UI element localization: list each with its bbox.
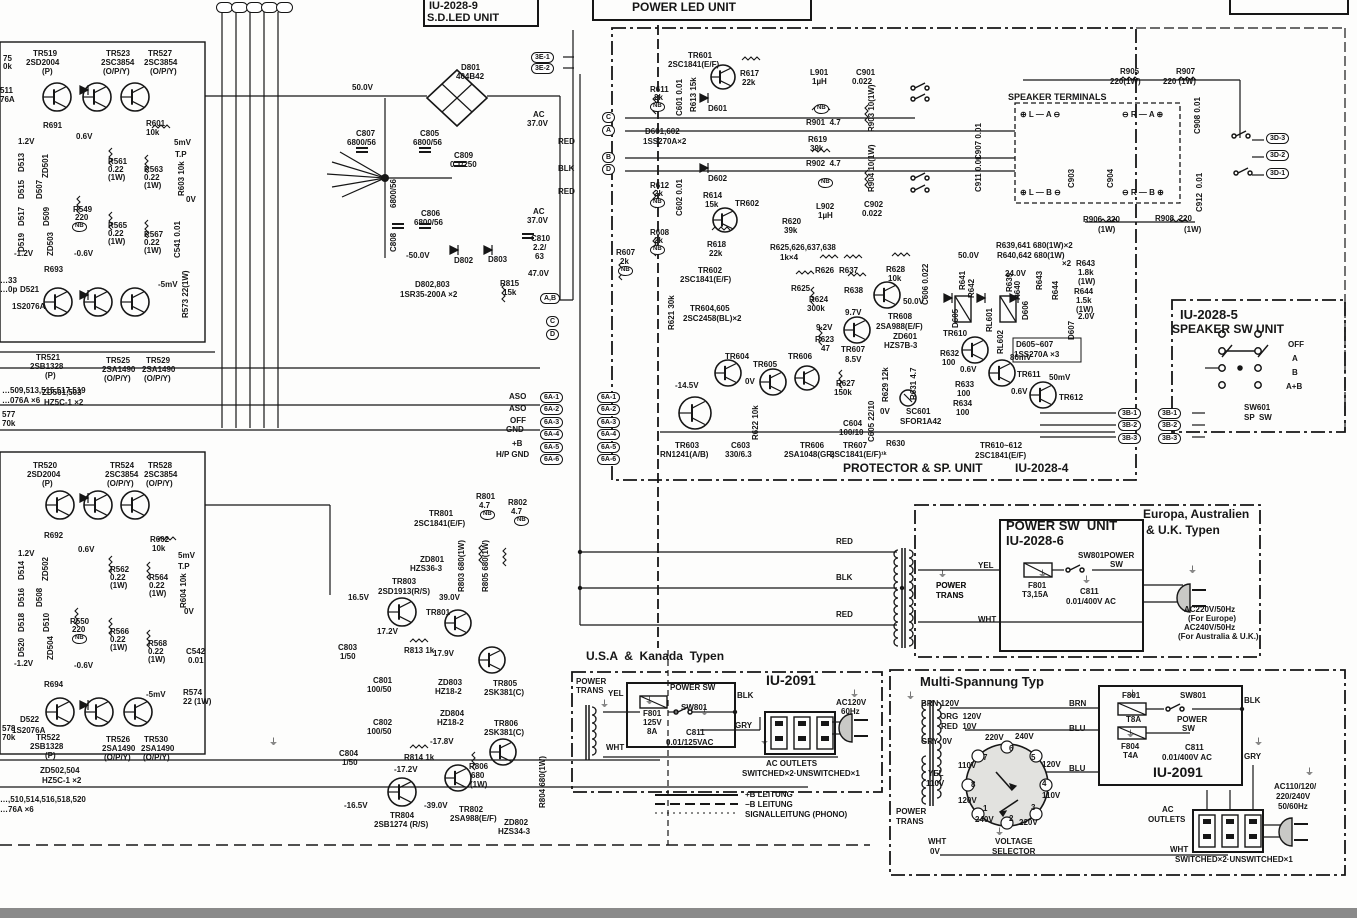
legend-label: −B LEITUNG	[745, 801, 793, 809]
power_supply-label: 0.1/250	[450, 161, 477, 169]
protector_unit-label: 100	[957, 390, 970, 398]
multi_voltage-label: WHT	[928, 838, 946, 846]
power_supply-label: 6800/56	[413, 139, 442, 147]
power_amp_left-label: (O/P/Y)	[104, 375, 131, 383]
nb-mark: NB	[814, 104, 829, 114]
connector-tag: 3D-3	[1266, 133, 1289, 144]
power_amp_left-label: 1.2V	[18, 138, 34, 146]
power_amp_left-label: (P)	[42, 480, 53, 488]
power_supply-label: RED	[836, 538, 853, 546]
usa_canada-label: YEL	[608, 690, 624, 698]
aux_amp-label: 1/50	[342, 759, 358, 767]
io_labels-label: H/P GND	[496, 451, 529, 459]
power_amp_left-label: D508	[36, 588, 44, 607]
multi_voltage-label: 7	[983, 754, 987, 762]
power_supply-label: D803	[488, 256, 507, 264]
multi_voltage-label: SW801	[1180, 692, 1206, 700]
power_amp_left-label: 5mV	[178, 552, 195, 560]
speaker_section-label: 220(1W)	[1110, 78, 1141, 86]
schematic-page: IU-2028-9S.D.LED UNITPOWER LED UNITPROTE…	[0, 0, 1357, 918]
connector-tag: 3D-2	[1266, 150, 1289, 161]
multi_voltage-label: 110V	[1042, 792, 1060, 800]
protector_unit-label: R631 4.7	[910, 368, 918, 400]
protector_unit-label: (1W)	[1078, 278, 1095, 286]
protector_unit-label: TR612	[1059, 394, 1083, 402]
power_sw_europa-label: WHT	[978, 616, 996, 624]
multi_voltage-label: 4	[1042, 780, 1046, 788]
power_sw_europa-label: YEL	[978, 562, 994, 570]
power_amp_left-label: ZD501	[42, 154, 50, 178]
connector-tag: 6A-5	[597, 442, 620, 453]
connector-tag: 6A-2	[540, 404, 563, 415]
protector_unit-label: 50mV	[1049, 374, 1070, 382]
power_sw_europa-label: T3,15A	[1022, 591, 1048, 599]
protector_unit-label: R638	[844, 287, 863, 295]
protector_unit-label: R625,626,637,638	[770, 244, 836, 252]
protector_unit-label: SFOR1A42	[900, 418, 941, 426]
power_amp_left-label: D519	[18, 233, 26, 252]
protector_unit-label: 0.6V	[1011, 388, 1027, 396]
power_amp_left-label: T.P	[178, 563, 190, 571]
protector_unit-label: 10k	[888, 275, 901, 283]
unit_titles-label: S.D.LED UNIT	[427, 13, 499, 25]
power_supply-label: 15k	[503, 289, 516, 297]
connector-tag: 3E-2	[531, 63, 554, 74]
speaker_section-label: B	[1292, 369, 1298, 377]
unit_titles-label: & U.K. Typen	[1146, 524, 1220, 537]
usa_canada-label: C811	[686, 729, 705, 737]
power_supply-label: RED	[558, 138, 575, 146]
connector-tag: 6A-4	[597, 429, 620, 440]
multi_voltage-label: BLU	[1069, 725, 1085, 733]
power_amp_left-label: D510	[43, 613, 51, 632]
aux_amp-label: -39.0V	[424, 802, 448, 810]
protector_unit-label: D605	[952, 309, 960, 328]
power_amp_left-label: (1W)	[144, 182, 161, 190]
power_amp_left-label: 10k	[146, 129, 159, 137]
legend-label: +B LEITUNG	[745, 791, 793, 799]
unit_titles-label: Europa, Australien	[1143, 508, 1249, 521]
protector_unit-label: R622 10k	[752, 405, 760, 440]
connector-tag: 6A-1	[540, 392, 563, 403]
power_amp_left-label: 0.6V	[78, 546, 94, 554]
connector-tag: 3E-1	[531, 52, 554, 63]
ground-icon: ⏚	[938, 570, 947, 579]
multi_voltage-label: GRY	[1244, 753, 1261, 761]
power_amp_left-label: D513	[18, 153, 26, 172]
protector_unit-label: 2SC1841(E/F)	[668, 61, 719, 69]
protector_unit-label: TR606	[788, 353, 812, 361]
unit_titles-label: U.S.A & Kanada Typen	[586, 650, 724, 663]
multi_voltage-label: C811	[1185, 744, 1204, 752]
multi_voltage-label: 110V	[958, 762, 976, 770]
speaker_section-label: R907	[1176, 68, 1195, 76]
protector_unit-label: TR610	[943, 330, 967, 338]
speaker_section-label: C908 0.01	[1194, 97, 1202, 134]
protector_unit-label: 1SS270A×2	[643, 138, 686, 146]
power_supply-label: 1SR35-200A ×2	[400, 291, 457, 299]
power_amp_left-label: (O/P/Y)	[144, 375, 171, 383]
connector-tag: 6A-1	[597, 392, 620, 403]
usa_canada-label: WHT	[606, 744, 624, 752]
power_supply-label: -50.0V	[406, 252, 430, 260]
protector_unit-label: RN1241(A/B)	[660, 451, 708, 459]
speaker_section-label: ⊖ R — B ⊕	[1122, 189, 1164, 197]
power_supply-label: BLK	[558, 165, 574, 173]
unit_titles-label: IU-2028-6	[1006, 534, 1064, 548]
speaker_section-label: C912 0.01	[1196, 173, 1204, 212]
ground-icon: ⏚	[760, 737, 769, 746]
protector_unit-label: TR608	[888, 313, 912, 321]
protector_unit-label: HZS7B-3	[884, 342, 917, 350]
protector_unit-label: 2.0V	[1078, 313, 1094, 321]
power_amp_left-label: D514	[18, 561, 26, 580]
power_amp_left-label: 22 (1W)	[183, 698, 211, 706]
nb-mark: NB	[650, 198, 665, 208]
protector_unit-label: R901 4.7	[806, 119, 841, 127]
connector-tag: 6A-5	[540, 442, 563, 453]
multi_voltage-label: 0.01/400V AC	[1162, 754, 1212, 762]
multi_voltage-label: BLU	[1069, 765, 1085, 773]
unit_titles-label: IU-2091	[1153, 765, 1203, 780]
protector_unit-label: 2SC1841(E/F)	[680, 276, 731, 284]
power_amp_left-label: ZD502,504	[40, 767, 80, 775]
power_sw_europa-label: SW801	[1078, 552, 1104, 560]
protector_unit-label: 1µH	[812, 78, 827, 86]
power_amp_left-label: D520	[18, 638, 26, 657]
usa_canada-label: 8A	[647, 728, 657, 736]
usa_canada-label: SWITCHED×2·UNSWITCHED×1	[742, 770, 860, 778]
nb-mark: NB	[650, 245, 665, 255]
protector_unit-label: RL602	[997, 330, 1005, 354]
power_supply-label: 6800/56	[390, 179, 398, 208]
multi_voltage-label: 220V	[1019, 819, 1038, 827]
speaker_section-label: ⊕ L — A ⊖	[1020, 111, 1060, 119]
protector_unit-label: R621 30k	[668, 295, 676, 330]
ground-icon: ⏚	[1082, 576, 1091, 585]
usa_canada-label: BLK	[737, 692, 753, 700]
protector_unit-label: TR604,605	[690, 305, 730, 313]
protector_unit-label: 0.022	[862, 210, 882, 218]
power_amp_left-label: (P)	[42, 68, 53, 76]
speaker_section-label: (1W)	[1098, 226, 1115, 234]
connector-tag: 6A-3	[597, 417, 620, 428]
power_amp_left-label: R691	[43, 122, 62, 130]
connector-tag: 3B-1	[1118, 408, 1141, 419]
aux_amp-label: 2SK381(C)	[484, 689, 524, 697]
multi_voltage-label: WHT	[1170, 846, 1188, 854]
power_amp_left-label: ZD502	[42, 557, 50, 581]
protector_unit-label: C605 22/10	[868, 401, 876, 442]
protector_unit-label: R642	[968, 279, 976, 298]
protector_unit-label: TR604	[725, 353, 749, 361]
protector_unit-label: R640,642 680(1W)	[997, 252, 1065, 260]
protector_unit-label: 0V	[745, 378, 755, 386]
connector-tag: 6A-4	[540, 429, 563, 440]
nb-mark: NB	[818, 178, 833, 188]
aux_amp-label: HZS34-3	[498, 828, 530, 836]
multi_voltage-label: AC110/120/	[1274, 783, 1316, 791]
ground-icon: ⏚	[906, 692, 915, 701]
multi_voltage-label: OUTLETS	[1148, 816, 1185, 824]
unit_titles-label: Multi-Spannung Typ	[920, 675, 1044, 689]
power_amp_left-label: -0.6V	[74, 662, 93, 670]
ground-icon: ⏚	[1126, 730, 1135, 739]
connector-tag: A,B	[540, 293, 560, 304]
power_amp_left-label: 5mV	[174, 139, 191, 147]
protector_unit-label: 50.0V	[958, 252, 979, 260]
power_sw_europa-label: (For Australia & U.K.)	[1178, 633, 1259, 641]
power_amp_left-label: (P)	[45, 372, 56, 380]
power_supply-label: BLK	[836, 574, 852, 582]
power_supply-label: RED	[558, 188, 575, 196]
speaker_section-label: (1W)	[1184, 226, 1201, 234]
unit_titles-label: IU-2028-4	[1015, 462, 1068, 475]
protector_unit-label: 2SC2458(BL)×2	[683, 315, 741, 323]
multi_voltage-label: BLK	[1244, 697, 1260, 705]
aux_amp-label: 2SD1913(R/S)	[378, 588, 430, 596]
speaker_section-label: C911 0.01	[975, 156, 983, 192]
protector_unit-label: RL601	[986, 308, 994, 332]
aux_amp-label: R803 680(1W)	[458, 540, 466, 592]
connector-tag: 3B-3	[1158, 433, 1181, 444]
connector-tag: 6A-6	[597, 454, 620, 465]
power_amp_left-label: R604 10k	[180, 573, 188, 608]
power_supply-label: 404B42	[456, 73, 484, 81]
multi_voltage-label: 2	[1009, 815, 1013, 823]
multi_voltage-label: AC	[1162, 806, 1174, 814]
protector_unit-label: R639,641 680(1W)×2	[996, 242, 1073, 250]
power_amp_left-label: T.P	[175, 151, 187, 159]
power_amp_left-label: 70k	[2, 734, 15, 742]
ground-icon: ⏚	[700, 708, 709, 717]
protector_unit-label: -14.5V	[675, 382, 699, 390]
power_amp_left-label: 0V	[184, 608, 194, 616]
protector_unit-label: 100	[956, 409, 969, 417]
multi_voltage-label: 0V	[930, 848, 940, 856]
multi_voltage-label: 120V	[958, 797, 977, 805]
multi_voltage-label: RED 10V	[941, 723, 977, 731]
nb-mark: NB	[480, 510, 495, 520]
aux_amp-label: R805 680(1W)	[482, 540, 490, 592]
multi_voltage-label: 5	[1031, 754, 1035, 762]
power_supply-label: D802,803	[415, 281, 450, 289]
aux_amp-label: -17.8V	[430, 738, 454, 746]
protector_unit-label: R902 4.7	[806, 160, 841, 168]
power_sw_europa-label: POWER	[936, 582, 966, 590]
protector_unit-label: D601,602	[645, 128, 680, 136]
power_amp_left-label: (1W)	[110, 582, 127, 590]
protector_unit-label: 100	[942, 359, 955, 367]
aux_amp-label: 1/50	[340, 653, 356, 661]
multi_voltage-label: 110V	[926, 780, 944, 788]
aux_amp-label: 2SK381(C)	[484, 729, 524, 737]
io_labels-label: +B	[512, 440, 522, 448]
aux_amp-label: 17.9V	[433, 650, 454, 658]
protector_unit-label: R626	[815, 267, 834, 275]
protector_unit-label: 22k	[742, 79, 755, 87]
unit_titles-label: POWER LED UNIT	[632, 1, 736, 14]
multi_voltage-label: GRY 0V	[921, 738, 952, 746]
power_amp_left-label: D507	[36, 180, 44, 199]
io_labels-label: ASO	[509, 405, 526, 413]
aux_amp-label: 16.5V	[348, 594, 369, 602]
multi_voltage-label: T4A	[1123, 752, 1138, 760]
nb-mark: NB	[72, 222, 87, 232]
protector_unit-label: 2SA988(E/F)	[876, 323, 923, 331]
power_amp_left-label: (O/P/Y)	[107, 480, 134, 488]
protector_unit-label: 50.0V	[903, 298, 924, 306]
usa_canada-label: 0.01/125VAC	[666, 739, 713, 747]
ground-icon: ⏚	[850, 690, 859, 699]
power_amp_left-label: -0.6V	[74, 250, 93, 258]
power_sw_europa-label: C811	[1080, 588, 1099, 596]
aux_amp-label: HZ18-2	[437, 719, 464, 727]
unit_titles-label: IU-2091	[766, 673, 816, 688]
power_amp_left-label: …76A ×6	[0, 806, 34, 814]
aux_amp-label: -17.2V	[394, 766, 418, 774]
aux_amp-label: TR801	[426, 609, 450, 617]
power_amp_left-label: R603 10k	[178, 161, 186, 196]
power_supply-label: 37.0V	[527, 217, 548, 225]
power_amp_left-label: …509,513,515,517,519	[2, 387, 86, 395]
protector_unit-label: C601 0.01	[676, 79, 684, 116]
multi_voltage-label: 220V	[985, 734, 1004, 742]
power_amp_left-label: ZD503	[47, 232, 55, 256]
power_supply-label: 6800/56	[414, 219, 443, 227]
protector_unit-label: R644	[1052, 281, 1060, 300]
ground-icon: ⏚	[269, 738, 278, 747]
aux_amp-label: R813 1k	[404, 647, 434, 655]
connector-tag: 3B-3	[1118, 433, 1141, 444]
protector_unit-label: 330/6.3	[725, 451, 752, 459]
power_amp_left-label: (O/P/Y)	[103, 68, 130, 76]
aux_amp-label: TR801	[429, 510, 453, 518]
speaker_section-label: OFF	[1288, 341, 1304, 349]
speaker_section-label: ⊖ R — A ⊕	[1122, 111, 1163, 119]
power_amp_left-label: D509	[43, 207, 51, 226]
multi_voltage-label: 240V	[975, 816, 994, 824]
speaker_section-label: C907 0.01	[975, 123, 983, 160]
protector_unit-label: R625	[791, 285, 810, 293]
protector_unit-label: 1k×4	[780, 254, 798, 262]
protector_unit-label: TR610~612	[980, 442, 1022, 450]
power_amp_left-label: (1W)	[110, 644, 127, 652]
power_amp_left-label: 10k	[152, 545, 165, 553]
ground-icon: ⏚	[1254, 738, 1263, 747]
speaker_section-label: C903	[1068, 169, 1076, 188]
protector_unit-label: D605~607	[1016, 341, 1053, 349]
protector_unit-label: R643	[1036, 271, 1044, 290]
aux_amp-label: (1W)	[470, 781, 487, 789]
aux_amp-label: 2SB1274 (R/S)	[374, 821, 428, 829]
speaker_section-label: 220 (1W)	[1163, 78, 1196, 86]
power_amp_left-label: D521	[20, 286, 39, 294]
power_amp_left-label: R692	[44, 532, 63, 540]
multi_voltage-label: BRN 120V	[921, 700, 959, 708]
multi_voltage-label: 8	[971, 781, 975, 789]
protector_unit-label: R629 12k	[882, 367, 890, 402]
power_amp_left-label: D516	[18, 588, 26, 607]
protector_unit-label: 2SA1048(GR)	[784, 451, 835, 459]
power_amp_left-label: 1.2V	[18, 550, 34, 558]
multi_voltage-label: ORG 120V	[940, 713, 981, 721]
unit_titles-label: SPEAKER SW UNIT	[1172, 323, 1284, 336]
power_amp_left-label: R694	[44, 681, 63, 689]
protector_unit-label: 300k	[807, 305, 825, 313]
power_supply-label: 63	[535, 253, 544, 261]
protector_unit-label: D607	[1068, 321, 1076, 340]
protector_unit-label: 9.7V	[845, 309, 861, 317]
power_amp_left-label: (O/P/Y)	[143, 754, 170, 762]
protector_unit-label: 47	[821, 345, 830, 353]
power_sw_europa-label: 0.01/400V AC	[1066, 598, 1116, 606]
usa_canada-label: 60Hz	[841, 708, 860, 716]
io_labels-label: GND	[506, 426, 524, 434]
power_supply-label: 6800/56	[347, 139, 376, 147]
power_amp_left-label: …076A ×6	[2, 397, 40, 405]
aux_amp-label: HZ18-2	[435, 688, 462, 696]
power_amp_left-label: (O/P/Y)	[146, 480, 173, 488]
aux_amp-label: R804 680(1W)	[539, 756, 547, 808]
power_supply-label: RED	[836, 611, 853, 619]
aux_amp-label: -16.5V	[344, 802, 368, 810]
unit_titles-label: IU-2028-5	[1180, 308, 1238, 322]
protector_unit-label: 150k	[834, 389, 852, 397]
protector_unit-label: 22k	[709, 250, 722, 258]
power_amp_left-label: -5mV	[146, 691, 166, 699]
multi_voltage-label: TRANS	[896, 818, 924, 826]
power_amp_left-label: (1W)	[149, 590, 166, 598]
power_amp_left-label: 1S2076A	[12, 303, 45, 311]
protector_unit-label: R637	[839, 267, 858, 275]
power_amp_left-label: D522	[20, 716, 39, 724]
speaker_section-label: SP SW	[1244, 414, 1272, 422]
aux_amp-label: HZS36-3	[410, 565, 442, 573]
unit_titles-label: IU-2028-9	[429, 1, 478, 13]
power_amp_left-label: (1W)	[108, 174, 125, 182]
protector_unit-label: 2SC1841(E/F)¹ᵏ	[830, 451, 887, 459]
nb-mark: NB	[650, 102, 665, 112]
connector-tag: 3B-2	[1158, 420, 1181, 431]
aux_amp-label: 2SC1841(E/F)	[414, 520, 465, 528]
aux_amp-label: 39.0V	[439, 594, 460, 602]
speaker_section-label: R905	[1120, 68, 1139, 76]
horizontal-scrollbar[interactable]	[0, 908, 1357, 918]
protector_unit-label: D601	[708, 105, 727, 113]
power_amp_left-label: (1W)	[144, 247, 161, 255]
io_labels-label: ASO	[509, 393, 526, 401]
protector_unit-label: R630	[886, 440, 905, 448]
power_sw_europa-label: SW	[1110, 561, 1123, 569]
power_supply-label: 37.0V	[527, 120, 548, 128]
protector_unit-label: 15k	[705, 201, 718, 209]
multi_voltage-label: VOLTAGE	[995, 838, 1032, 846]
protector_unit-label: TR611	[1017, 371, 1041, 379]
speaker_section-label: SW601	[1244, 404, 1270, 412]
protector_unit-label: SC601	[906, 408, 930, 416]
usa_canada-label: POWER SW	[670, 684, 715, 692]
power_amp_left-label: 76A	[0, 96, 15, 104]
protector_unit-label: R903 10(1W)	[868, 84, 876, 132]
legend-label: SIGNALLEITUNG (PHONO)	[745, 811, 847, 819]
protector_unit-label: 0V	[880, 408, 890, 416]
ground-icon: ⏚	[600, 700, 609, 709]
multi_voltage-label: 120V	[1042, 761, 1061, 769]
power_amp_left-label: C541 0.01	[174, 221, 182, 258]
connector-tag: 3B-1	[1158, 408, 1181, 419]
ground-icon: ⏚	[1188, 566, 1197, 575]
